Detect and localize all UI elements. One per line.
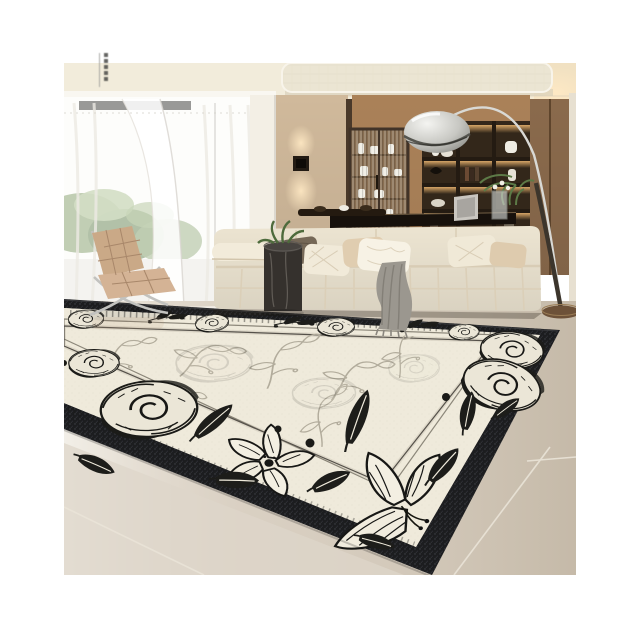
watermark-glyph (104, 65, 108, 69)
sconce-glow-up (287, 125, 315, 161)
vertical-watermark (99, 53, 116, 87)
watermark-glyph (104, 71, 108, 75)
sconce-glow-down (285, 169, 317, 213)
lamp-dome-shade (404, 111, 470, 153)
product-photo-frame (64, 63, 576, 575)
desk-lamp-object (454, 194, 478, 221)
right-wall (569, 93, 576, 305)
watermark-glyph (104, 59, 108, 63)
living-room-scene (64, 63, 576, 575)
watermark-glyph (104, 53, 108, 57)
watermark-glyph (104, 77, 108, 81)
product-photo-page (0, 0, 640, 640)
chair-reflection (92, 317, 164, 329)
